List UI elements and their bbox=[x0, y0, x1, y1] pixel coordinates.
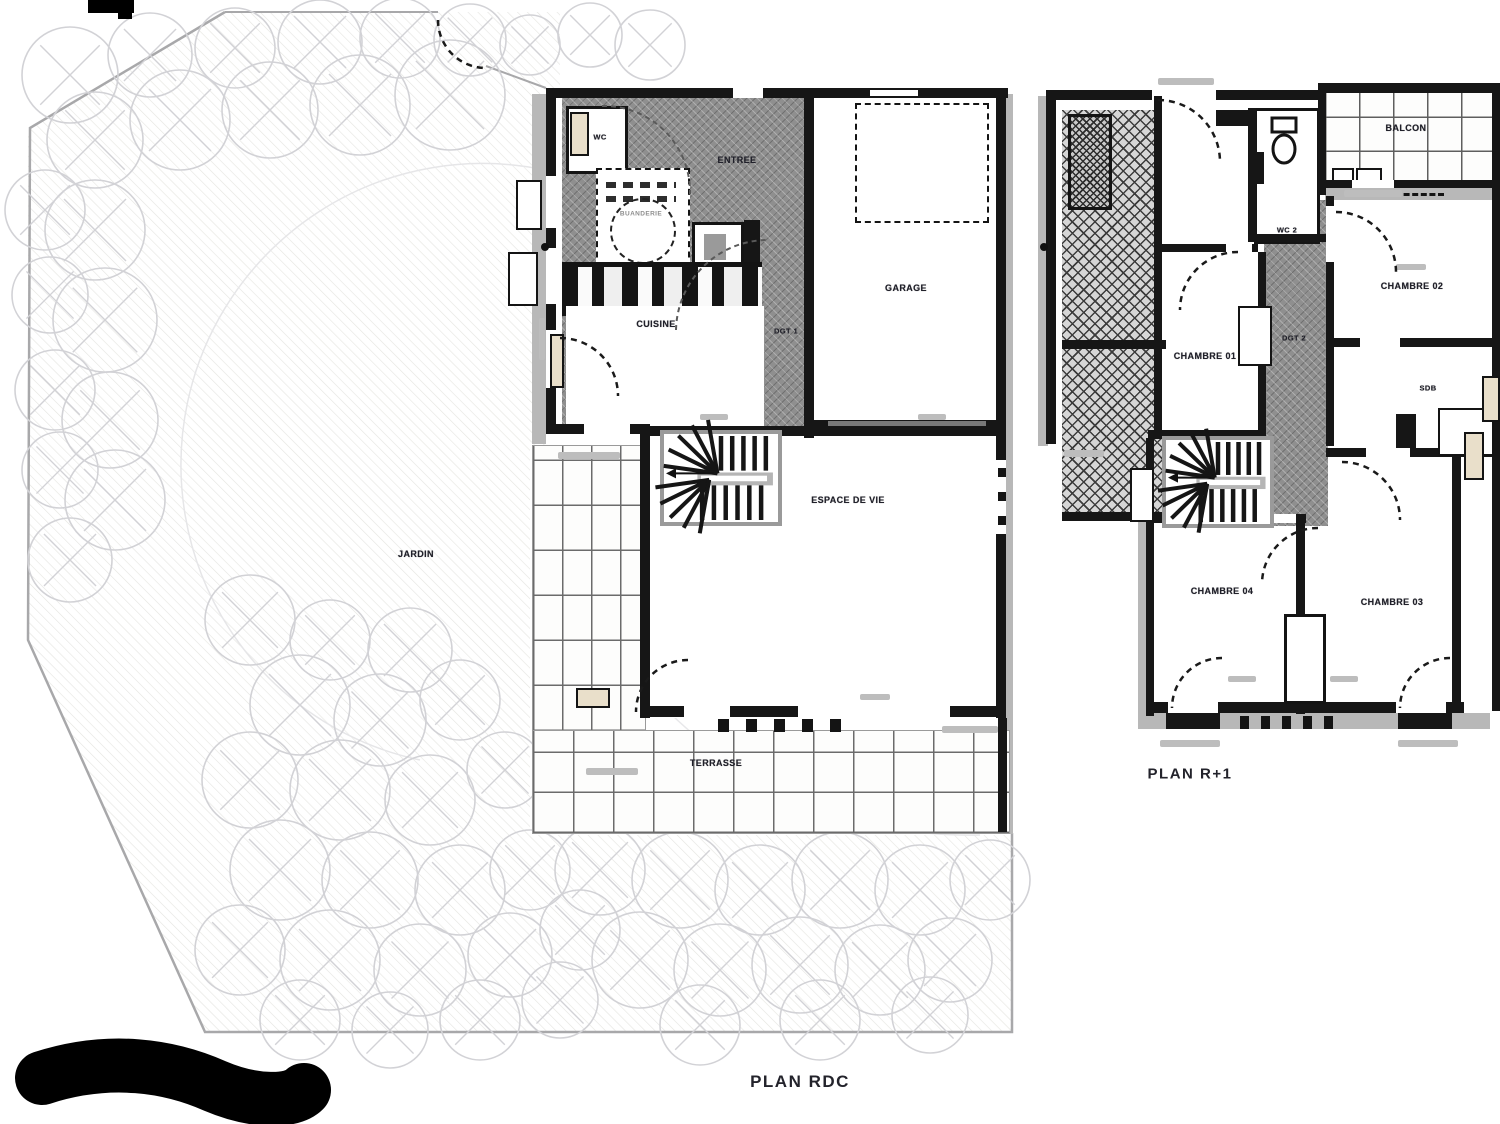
rdc-terrasse-tiles bbox=[532, 730, 1010, 834]
garage-dashed-overhead bbox=[855, 103, 989, 223]
label-wc: WC bbox=[593, 133, 606, 142]
window-tick bbox=[998, 492, 1006, 501]
label-terrasse: TERRASSE bbox=[690, 758, 742, 768]
chambre01-door-gap bbox=[1226, 244, 1252, 252]
rdc-terrace-door-gap bbox=[684, 706, 730, 717]
dim-smudge bbox=[860, 694, 890, 700]
rdc-wall bbox=[546, 88, 812, 98]
dim-smudge bbox=[1064, 450, 1104, 457]
r1-washbasin bbox=[1250, 152, 1264, 184]
dim-smudge bbox=[586, 768, 638, 775]
chambre03-door-gap bbox=[1366, 448, 1410, 457]
scan-artifact bbox=[118, 13, 132, 19]
washer-circle bbox=[610, 198, 676, 264]
label-cuisine: CUISINE bbox=[636, 319, 675, 329]
window-tick bbox=[998, 516, 1006, 525]
chambre04-door-gap bbox=[1252, 514, 1296, 523]
rdc-living-room bbox=[650, 436, 996, 708]
r1-plan-title: PLAN R+1 bbox=[1148, 766, 1233, 783]
label-sdb: SDB bbox=[1419, 384, 1436, 393]
rdc-bay-window-gap bbox=[798, 706, 950, 717]
dim-smudge bbox=[1228, 676, 1256, 682]
rdc-garage-top-gap bbox=[870, 90, 918, 96]
step-tick bbox=[774, 719, 785, 732]
label-chambre02: CHAMBRE 02 bbox=[1381, 281, 1444, 291]
label-chambre03: CHAMBRE 03 bbox=[1361, 597, 1424, 607]
r1-door-gap-sw bbox=[1168, 702, 1218, 713]
label-dgt2: DGT 2 bbox=[1282, 334, 1306, 343]
step-tick bbox=[718, 719, 729, 732]
rdc-ext-window-2 bbox=[508, 252, 538, 306]
r1-wall bbox=[1154, 96, 1162, 438]
step-tick bbox=[1303, 716, 1312, 729]
balcon-door-gap bbox=[1352, 180, 1394, 188]
dim-smudge bbox=[918, 414, 946, 420]
r1-step-block bbox=[1166, 713, 1220, 729]
r1-wall bbox=[1318, 83, 1500, 93]
r1-wall bbox=[1318, 180, 1500, 188]
step-tick bbox=[1324, 716, 1333, 729]
rdc-wall bbox=[804, 88, 814, 438]
rdc-buanderie-zone bbox=[596, 168, 690, 268]
step-tick bbox=[830, 719, 841, 732]
chambre02-door-gap bbox=[1326, 206, 1334, 262]
r1-wall bbox=[1148, 430, 1264, 439]
rdc-front-door-gap bbox=[733, 88, 763, 98]
step-tick bbox=[802, 719, 813, 732]
buanderie-dash-1 bbox=[606, 182, 676, 188]
step-tick bbox=[746, 719, 757, 732]
r1-roof-hatch-box bbox=[1068, 114, 1112, 210]
terrace-right-wall bbox=[998, 718, 1007, 832]
rdc-patio-door-gap bbox=[584, 424, 630, 434]
rdc-wall bbox=[640, 426, 650, 718]
label-wc2: WC 2 bbox=[1277, 226, 1297, 235]
r1-cabinet-top bbox=[1216, 110, 1250, 126]
rdc-ext-window-1 bbox=[516, 180, 542, 230]
dim-smudge bbox=[1160, 740, 1220, 747]
label-chambre04: CHAMBRE 04 bbox=[1191, 586, 1254, 596]
label-buanderie: BUANDERIE bbox=[620, 211, 662, 218]
dim-smudge bbox=[700, 414, 728, 420]
sdb-door-gap bbox=[1360, 338, 1400, 347]
r1-wall bbox=[1318, 83, 1326, 195]
corridor-closet bbox=[1238, 306, 1272, 366]
r1-wall bbox=[1452, 452, 1461, 708]
r1-wall bbox=[1062, 340, 1166, 349]
rdc-wall bbox=[996, 94, 1006, 430]
dim-smudge bbox=[1398, 740, 1458, 747]
r1-wall bbox=[1248, 234, 1328, 242]
label-balcon: BALCON bbox=[1386, 123, 1427, 133]
label-entree: ENTREE bbox=[718, 155, 757, 165]
rdc-wc-fixture bbox=[570, 112, 589, 156]
label-garage: GARAGE bbox=[885, 283, 927, 293]
r1-step-block bbox=[1398, 713, 1452, 729]
rdc-window-gap bbox=[546, 248, 556, 304]
r1-ext-window bbox=[1130, 468, 1154, 522]
chambre03-door-leaf bbox=[1464, 432, 1484, 480]
step-tick bbox=[1261, 716, 1270, 729]
dim-smudge bbox=[539, 318, 545, 360]
appliance-glyph bbox=[704, 234, 726, 260]
dim-smudge bbox=[1158, 78, 1214, 85]
living-door-leaf bbox=[576, 688, 610, 708]
chambre-closet bbox=[1284, 614, 1326, 704]
step-tick bbox=[1240, 716, 1249, 729]
window-tick bbox=[998, 468, 1006, 477]
rdc-window-gap bbox=[546, 176, 556, 228]
floor-plan-sheet: WC ENTREE BUANDERIE CUISINE DGT 1 GARAGE… bbox=[0, 0, 1500, 1124]
rdc-plan-title: PLAN RDC bbox=[750, 1072, 850, 1092]
label-chambre01: CHAMBRE 01 bbox=[1174, 351, 1237, 361]
dim-smudge bbox=[1330, 676, 1358, 682]
sdb-basin bbox=[1396, 414, 1416, 448]
dim-smudge bbox=[1396, 264, 1426, 270]
label-espace-de-vie: ESPACE DE VIE bbox=[811, 495, 885, 505]
dim-smudge bbox=[942, 726, 998, 733]
kitchen-door-leaf bbox=[550, 334, 564, 388]
label-dgt1: DGT 1 bbox=[774, 327, 798, 336]
step-tick bbox=[1282, 716, 1291, 729]
scan-artifact bbox=[88, 0, 134, 13]
rdc-slim-cabinet bbox=[744, 220, 760, 268]
sdb-door-leaf bbox=[1482, 376, 1500, 422]
dim-smudge bbox=[558, 452, 620, 459]
rdc-wall bbox=[640, 426, 1006, 436]
label-jardin: JARDIN bbox=[398, 549, 434, 559]
r1-door-gap-se bbox=[1396, 702, 1446, 713]
dim-smudge bbox=[1344, 190, 1402, 197]
r1-wall bbox=[1046, 96, 1056, 444]
r1-wall bbox=[1326, 338, 1500, 347]
